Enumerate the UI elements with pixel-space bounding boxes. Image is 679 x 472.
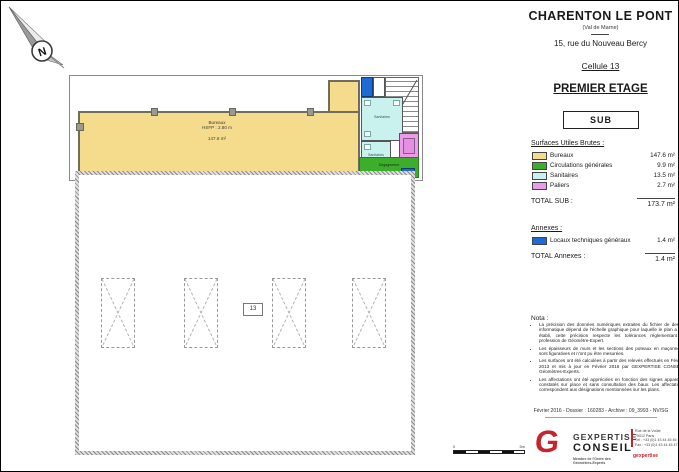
total-annexes-value: 1.4 m²	[645, 253, 675, 263]
room-bureaux-extension	[328, 80, 360, 114]
legend-value: 2.7 m²	[657, 182, 675, 189]
cell-number-tag: 13	[243, 303, 263, 316]
logo-name-top: GEXPERTISE	[573, 432, 637, 442]
void-opening	[352, 278, 386, 348]
void-opening	[272, 278, 306, 348]
nota-item: Les épaisseurs de murs et les sections d…	[539, 346, 679, 357]
column-stub	[76, 123, 84, 131]
surfaces-heading: Surfaces Utiles Brutes :	[531, 140, 604, 147]
nota-heading: Nota :	[531, 315, 548, 322]
scale-label-start: 0	[453, 444, 455, 449]
room-label-bureaux: Bureaux HSFP : 2.80 m 147.6 m²	[159, 120, 275, 141]
legend-row-locaux-techniques: Locaux techniques généraux 1.4 m²	[531, 237, 675, 246]
room-local-technique-top	[361, 77, 373, 97]
column-stub	[307, 108, 314, 116]
sheet-floor-name: PREMIER ETAGE	[523, 83, 678, 95]
legend-swatch-bureaux	[532, 152, 547, 160]
legend-value: 9.9 m²	[657, 162, 675, 169]
sheet-title-city: CHARENTON LE PONT	[523, 9, 678, 23]
room-label-sanitaires-1: Sanitaires	[362, 115, 402, 119]
north-compass-icon: N	[7, 5, 71, 77]
legend-swatch-paliers	[532, 182, 547, 190]
legend-swatch-locaux-techniques	[532, 237, 547, 245]
date-dossier-line: Février 2016 - Dossier : 160283 - Archiv…	[525, 408, 677, 414]
room-palier	[399, 133, 419, 159]
logo-name-bottom: CONSEIL	[573, 442, 632, 454]
column-stub	[229, 108, 236, 116]
legend-label: Bureaux	[550, 152, 573, 159]
brand-wordmark: gexpertise	[633, 453, 658, 459]
wc-fixture-icon	[364, 131, 371, 137]
room-sanitaires-1: Sanitaires	[361, 97, 403, 141]
nota-list: La précision des données numériques extr…	[531, 322, 679, 395]
legend-label: Paliers	[550, 182, 569, 189]
total-sub-label: TOTAL SUB :	[531, 198, 573, 205]
legend-row-bureaux: Bureaux 147.6 m²	[531, 152, 675, 161]
total-sub-value: 173.7 m²	[637, 198, 675, 208]
scale-label-end: 5m	[519, 444, 525, 449]
room-label-degagement: Dégagement	[360, 163, 418, 167]
legend-row-sanitaires: Sanitaires 13.5 m²	[531, 172, 675, 181]
nota-item: Les affectations ont été appréciées en f…	[539, 377, 679, 393]
nota-item: Les surfaces ont été calculées à partir …	[539, 358, 679, 374]
void-opening	[101, 278, 135, 348]
legend-label: Locaux techniques généraux	[550, 237, 631, 244]
contact-line: Fax : +33 (0)1 43 44 45 47	[635, 443, 679, 448]
wc-fixture-icon	[364, 100, 371, 106]
wc-fixture-icon	[393, 100, 400, 106]
logo-contact-block: Rue de la Voûte 75012 Paris Tél : +33 (0…	[631, 429, 679, 447]
legend-label: Circulations générales	[550, 162, 612, 169]
room-small-white	[373, 77, 385, 97]
divider-red	[545, 417, 657, 418]
annexes-heading: Annexes :	[531, 225, 562, 232]
legend-value: 13.5 m²	[654, 172, 675, 179]
legend-row-paliers: Paliers 2.7 m²	[531, 182, 675, 191]
legend-row-circulations: Circulations générales 9.9 m²	[531, 162, 675, 171]
scale-bar	[453, 450, 525, 454]
total-annexes-label: TOTAL Annexes :	[531, 253, 585, 260]
sub-box: SUB	[563, 111, 639, 129]
gexpertise-logo-icon: G	[533, 425, 561, 459]
legend-swatch-sanitaires	[532, 172, 547, 180]
legend-value: 147.6 m²	[650, 152, 675, 159]
sheet-address: 15, rue du Nouveau Bercy	[523, 39, 678, 48]
divider	[591, 34, 609, 35]
legend-swatch-circulations	[532, 162, 547, 170]
void-opening	[184, 278, 218, 348]
lift-shaft	[403, 138, 415, 154]
sheet-subtitle-dept: (Val de Marne)	[523, 25, 678, 31]
wc-fixture-icon	[364, 144, 371, 150]
legend-label: Sanitaires	[550, 172, 578, 179]
legend-value: 1.4 m²	[657, 237, 675, 244]
column-stub	[151, 108, 158, 116]
floorplan-sheet: N Bureaux HSFP : 2.80 m 147.6 m² Sanitai…	[0, 0, 679, 472]
nota-item: La précision des données numériques extr…	[539, 322, 679, 344]
logo-tagline: Membre de l'Ordre des Géomètres-Experts	[573, 457, 629, 465]
sheet-cell-name: Cellule 13	[523, 61, 678, 71]
